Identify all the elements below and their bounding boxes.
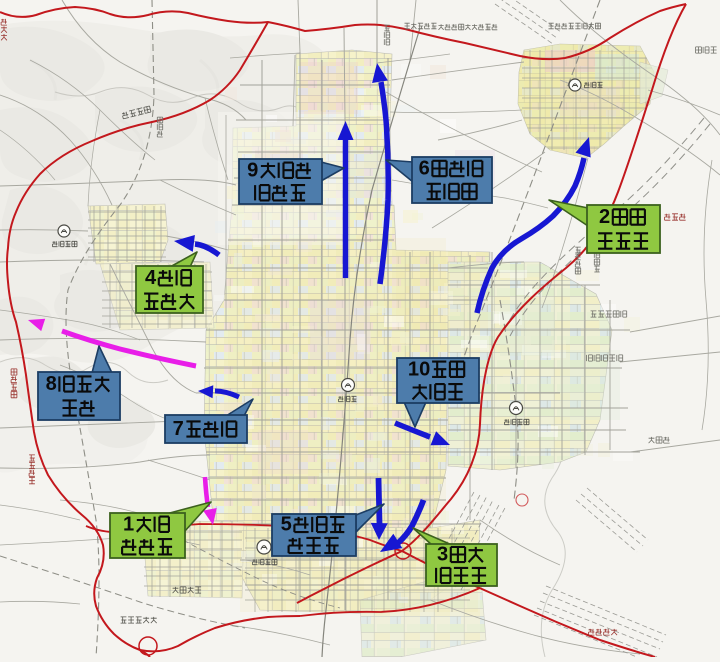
svg-text:6: 6 — [419, 158, 430, 180]
svg-text:4: 4 — [145, 267, 157, 289]
svg-text:9: 9 — [247, 159, 258, 181]
svg-text:2: 2 — [599, 206, 610, 228]
svg-text:7: 7 — [173, 418, 184, 440]
svg-text:5: 5 — [281, 514, 292, 536]
svg-text:10: 10 — [408, 358, 430, 380]
svg-text:1: 1 — [123, 513, 134, 535]
svg-text:8: 8 — [46, 373, 57, 395]
svg-text:3: 3 — [437, 544, 448, 566]
